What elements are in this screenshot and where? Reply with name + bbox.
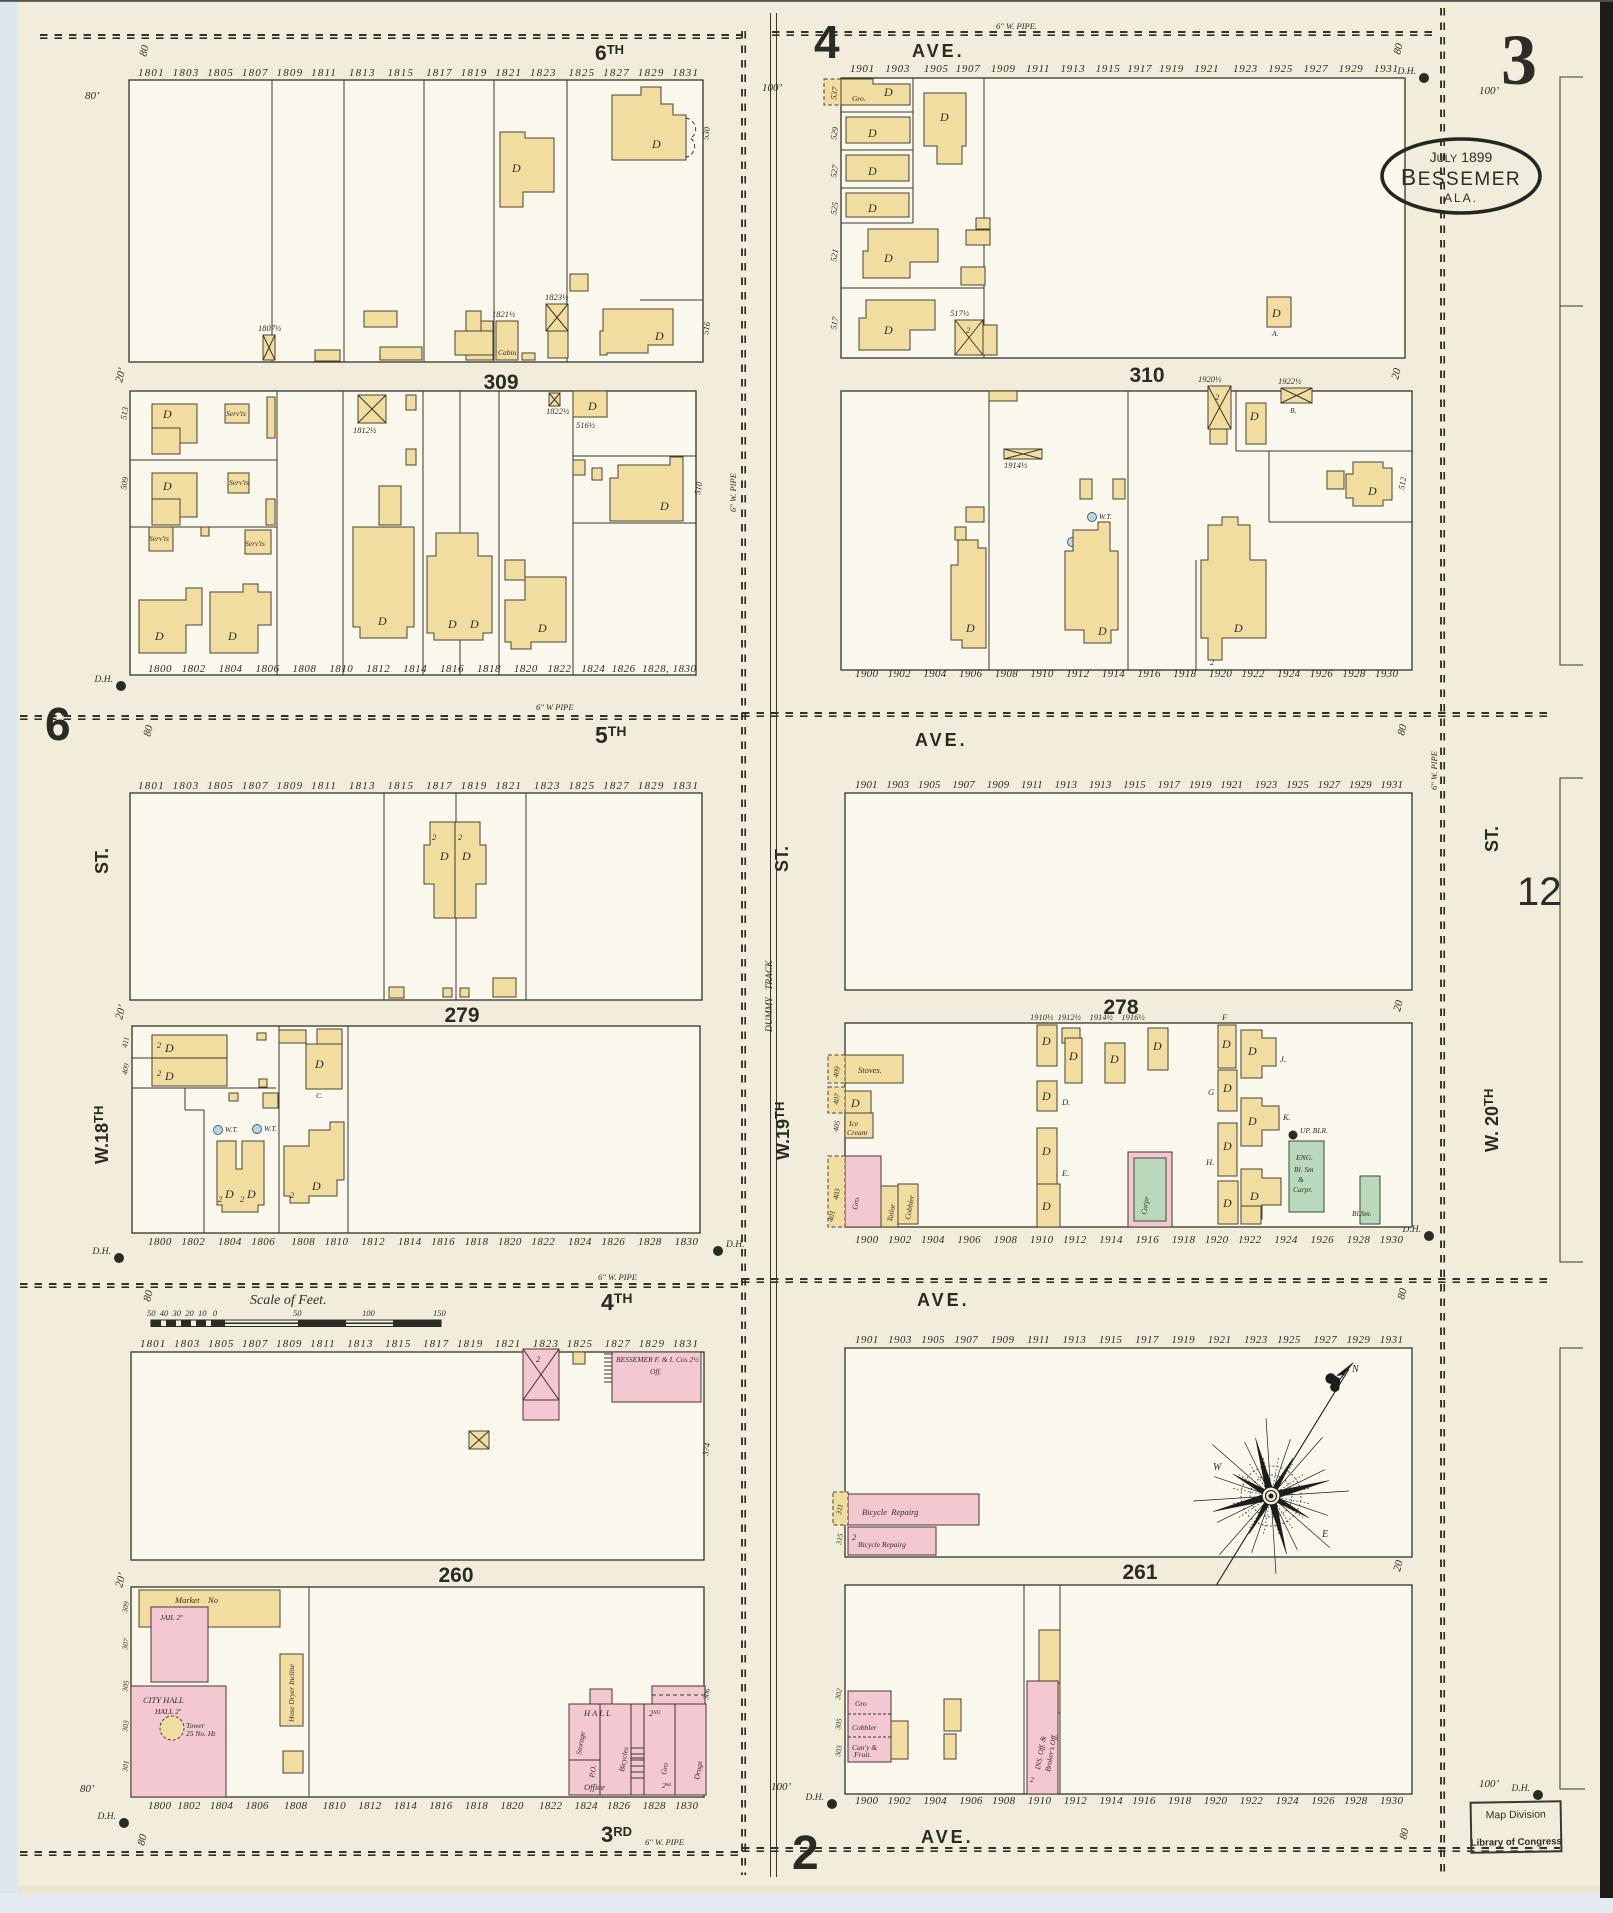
svg-text:D.H.: D.H. — [725, 1240, 744, 1250]
svg-text:D: D — [224, 1187, 234, 1201]
svg-text:BESSEMER F. & I. Cos 2½: BESSEMER F. & I. Cos 2½ — [616, 1355, 699, 1364]
svg-text:D: D — [883, 85, 893, 99]
svg-text:1821½: 1821½ — [492, 309, 516, 319]
svg-text:411: 411 — [120, 1036, 131, 1048]
svg-text:D: D — [1097, 624, 1107, 638]
svg-text:1801 1803 1805 1807 1809: 1801 1803 1805 1807 1809 1811 1813 1815 … — [140, 1338, 698, 1350]
svg-text:D: D — [1247, 1044, 1257, 1058]
svg-text:D: D — [511, 161, 521, 175]
svg-text:12: 12 — [1517, 870, 1562, 914]
svg-text:80’: 80’ — [80, 1783, 95, 1795]
svg-text:JAIL 2º: JAIL 2º — [160, 1613, 183, 1622]
svg-text:D.H.: D.H. — [94, 675, 113, 685]
svg-text:N: N — [1351, 1364, 1360, 1375]
svg-text:D: D — [227, 629, 237, 643]
svg-text:D.: D. — [1061, 1097, 1070, 1107]
svg-text:D: D — [1041, 1034, 1051, 1048]
svg-text:Ice: Ice — [848, 1119, 859, 1128]
svg-text:D: D — [154, 629, 164, 643]
svg-text:F: F — [1221, 1012, 1228, 1022]
svg-text:E.: E. — [1061, 1168, 1069, 1178]
svg-text:D: D — [314, 1057, 324, 1071]
svg-text:Fruit.: Fruit. — [853, 1750, 871, 1759]
svg-text:D: D — [377, 614, 387, 628]
svg-text:100’: 100’ — [771, 1781, 792, 1793]
svg-text:AVE.: AVE. — [921, 1827, 974, 1847]
svg-text:ST.: ST. — [1482, 826, 1502, 852]
svg-text:516½: 516½ — [576, 420, 596, 430]
svg-text:CITY HALL: CITY HALL — [143, 1695, 184, 1705]
svg-text:50: 50 — [293, 1308, 302, 1318]
svg-text:1920½: 1920½ — [1198, 374, 1222, 384]
svg-text:Bl.Sm.: Bl.Sm. — [1352, 1209, 1372, 1218]
svg-text:AVE.: AVE. — [912, 41, 965, 61]
svg-text:D: D — [1041, 1199, 1051, 1213]
svg-text:Carpr.: Carpr. — [1293, 1185, 1313, 1194]
svg-text:W.T.: W.T. — [264, 1124, 277, 1133]
svg-text:ST.: ST. — [772, 846, 792, 872]
svg-text:D: D — [1041, 1089, 1051, 1103]
svg-text:D: D — [537, 621, 547, 635]
svg-text:1910½ 1912½ 1914½ 1916½: 1910½ 1912½ 1914½ 1916½ — [1030, 1012, 1145, 1022]
svg-text:D.H.: D.H. — [97, 1812, 116, 1822]
svg-text:4: 4 — [814, 16, 840, 68]
svg-text:100: 100 — [362, 1308, 376, 1318]
svg-text:260: 260 — [438, 1564, 473, 1587]
svg-text:E: E — [1321, 1529, 1328, 1540]
svg-text:D: D — [867, 201, 877, 215]
svg-text:1800 1802 1804 1806: 1800 1802 1804 1806 1808 1810 1812 1814 … — [148, 663, 697, 675]
svg-text:100’: 100’ — [1479, 85, 1500, 97]
svg-text:C.: C. — [316, 1091, 323, 1100]
svg-text:Bl. Sm: Bl. Sm — [1294, 1165, 1314, 1174]
svg-text:1807½: 1807½ — [258, 323, 282, 333]
svg-text:Cabin: Cabin — [498, 348, 517, 357]
svg-text:6" W. PIPE: 6" W. PIPE — [645, 1837, 685, 1847]
svg-text:D: D — [1367, 484, 1377, 498]
svg-text:Cream: Cream — [847, 1128, 868, 1137]
svg-text:D: D — [850, 1096, 860, 1110]
svg-text:&: & — [1298, 1175, 1304, 1184]
svg-text:D: D — [1152, 1039, 1162, 1053]
svg-text:D: D — [1233, 621, 1243, 635]
svg-text:1901 1903 1905 1907 1: 1901 1903 1905 1907 1909 1911 1913 1915 … — [855, 1334, 1403, 1346]
svg-text:2: 2 — [1030, 1775, 1034, 1784]
svg-text:2: 2 — [792, 1827, 819, 1880]
svg-text:D.H.: D.H. — [805, 1793, 824, 1803]
svg-text:1922½: 1922½ — [1278, 376, 1302, 386]
svg-text:D: D — [469, 617, 479, 631]
svg-text:Bicycle Repairg: Bicycle Repairg — [858, 1540, 906, 1549]
svg-text:1822½: 1822½ — [546, 406, 570, 416]
svg-text:W.T.: W.T. — [1099, 512, 1112, 521]
svg-text:DUMMY TRACK: DUMMY TRACK — [765, 960, 775, 1033]
svg-text:J.: J. — [1280, 1054, 1286, 1064]
svg-text:1800 1802 1804 1806: 1800 1802 1804 1806 1808 1810 1812 1814 … — [148, 1236, 699, 1248]
svg-text:D: D — [659, 499, 669, 513]
svg-text:D: D — [164, 1041, 174, 1055]
svg-text:Bicycle Repairg: Bicycle Repairg — [862, 1507, 918, 1517]
svg-text:B.: B. — [1290, 406, 1297, 415]
svg-text:D: D — [1068, 1049, 1078, 1063]
svg-text:Serv'ts: Serv'ts — [226, 409, 246, 418]
svg-text:3: 3 — [1501, 20, 1537, 100]
svg-text:D: D — [1249, 1189, 1259, 1203]
svg-text:D: D — [1109, 1052, 1119, 1066]
svg-text:D: D — [162, 407, 172, 421]
svg-text:1812½: 1812½ — [353, 425, 377, 435]
svg-text:1901 1903 1905 1907: 1901 1903 1905 1907 1909 1911 1913 1913 … — [855, 779, 1403, 791]
svg-text:ST.: ST. — [92, 848, 112, 874]
svg-text:6" W. PIPE: 6" W. PIPE — [1429, 750, 1439, 790]
svg-text:D: D — [461, 849, 471, 863]
svg-text:HALL 2º: HALL 2º — [154, 1707, 182, 1716]
svg-text:1900 1902 1904 1906: 1900 1902 1904 1906 1908 1910 1912 1914 … — [855, 1234, 1404, 1246]
svg-text:1801 1803 1805 1807 1809: 1801 1803 1805 1807 1809 1811 1813 1815 … — [138, 67, 698, 79]
svg-text:D: D — [883, 323, 893, 337]
svg-text:AVE.: AVE. — [915, 730, 968, 750]
svg-text:D: D — [587, 399, 597, 413]
svg-text:Hose Dryer Incline: Hose Dryer Incline — [287, 1663, 296, 1723]
svg-text:H A L L: H A L L — [583, 1708, 611, 1718]
svg-text:D: D — [447, 617, 457, 631]
svg-text:D: D — [1221, 1037, 1231, 1051]
svg-text:UP. BLR.: UP. BLR. — [1300, 1126, 1328, 1135]
svg-text:ENG.: ENG. — [1295, 1153, 1313, 1162]
svg-text:80’: 80’ — [85, 90, 100, 102]
svg-text:D.H.: D.H. — [92, 1247, 111, 1257]
svg-text:D: D — [1222, 1081, 1232, 1095]
svg-text:Serv'ts: Serv'ts — [245, 539, 265, 548]
svg-text:Library of Congress: Library of Congress — [1471, 1836, 1562, 1849]
svg-text:6" W. PIPE: 6" W. PIPE — [728, 472, 738, 512]
svg-text:AVE.: AVE. — [917, 1290, 970, 1310]
svg-text:401: 401 — [826, 1210, 837, 1223]
svg-text:D: D — [1222, 1139, 1232, 1153]
svg-text:Office: Office — [584, 1782, 605, 1792]
svg-text:G: G — [1208, 1087, 1214, 1097]
svg-text:D: D — [654, 329, 664, 343]
svg-text:D: D — [867, 126, 877, 140]
svg-text:D: D — [246, 1187, 256, 1201]
svg-text:261: 261 — [1122, 1561, 1157, 1584]
svg-text:Cobbler: Cobbler — [852, 1723, 877, 1732]
svg-text:6" W. PIPE: 6" W. PIPE — [598, 1272, 638, 1282]
svg-text:50 40 30 20 10 0: 50 40 30 20 10 0 — [147, 1308, 218, 1318]
svg-text:1823½: 1823½ — [545, 292, 569, 302]
svg-text:D.H.: D.H. — [1511, 1784, 1530, 1794]
svg-text:D: D — [965, 621, 975, 635]
svg-text:D: D — [1271, 306, 1281, 320]
svg-text:D: D — [883, 251, 893, 265]
svg-text:D: D — [1041, 1144, 1051, 1158]
svg-text:1900 1902 1904 1906: 1900 1902 1904 1906 1908 1910 1912 1914 … — [855, 668, 1399, 680]
svg-text:1900 1902 1904 1906: 1900 1902 1904 1906 1908 1910 1912 1914 … — [855, 1795, 1404, 1807]
svg-text:Map Division: Map Division — [1486, 1808, 1546, 1821]
svg-text:1800 1802 1804 1806: 1800 1802 1804 1806 1808 1810 1812 1814 … — [148, 1800, 699, 1812]
svg-text:D: D — [164, 1069, 174, 1083]
svg-text:D: D — [1249, 409, 1259, 423]
svg-text:517½: 517½ — [950, 308, 970, 318]
svg-text:Gro.: Gro. — [852, 94, 866, 103]
svg-text:ALA.: ALA. — [1444, 191, 1478, 205]
svg-text:1801 1803 1805 1807 1809: 1801 1803 1805 1807 1809 1811 1813 1815 … — [138, 780, 698, 792]
svg-text:1914½: 1914½ — [1004, 460, 1028, 470]
svg-text:D: D — [651, 137, 661, 151]
svg-text:D: D — [1247, 1114, 1257, 1128]
svg-text:H.: H. — [1205, 1157, 1214, 1167]
svg-text:100’: 100’ — [762, 82, 783, 94]
svg-text:6" W. PIPE.: 6" W. PIPE. — [996, 21, 1037, 31]
svg-text:6: 6 — [45, 698, 71, 750]
svg-text:Gro: Gro — [855, 1699, 867, 1708]
svg-text:310: 310 — [1129, 364, 1164, 387]
svg-text:D: D — [162, 479, 172, 493]
svg-text:D: D — [439, 849, 449, 863]
svg-text:150: 150 — [433, 1308, 447, 1318]
svg-text:6" W PIPE: 6" W PIPE — [536, 702, 574, 712]
svg-text:A.: A. — [1271, 329, 1279, 338]
svg-text:Serv'ts: Serv'ts — [229, 478, 249, 487]
svg-text:D.H.: D.H. — [1397, 67, 1416, 77]
svg-text:Off.: Off. — [650, 1367, 662, 1376]
svg-text:100’: 100’ — [1479, 1778, 1500, 1790]
svg-text:1901 1903 1905 1907 19: 1901 1903 1905 1907 1909 1911 1913 1915 … — [850, 63, 1398, 75]
svg-text:25 No. Ht: 25 No. Ht — [186, 1729, 216, 1738]
svg-text:K.: K. — [1282, 1112, 1291, 1122]
svg-text:Stoves.: Stoves. — [858, 1065, 882, 1075]
svg-text:D: D — [867, 164, 877, 178]
svg-text:D: D — [1222, 1196, 1232, 1210]
svg-text:D: D — [311, 1179, 321, 1193]
svg-text:279: 279 — [444, 1004, 479, 1027]
svg-text:W.T.: W.T. — [225, 1125, 238, 1134]
svg-text:Market No: Market No — [174, 1595, 218, 1605]
svg-text:D: D — [939, 110, 949, 124]
svg-text:Scale of Feet.: Scale of Feet. — [250, 1293, 327, 1308]
svg-text:Serv'ts: Serv'ts — [149, 534, 169, 543]
